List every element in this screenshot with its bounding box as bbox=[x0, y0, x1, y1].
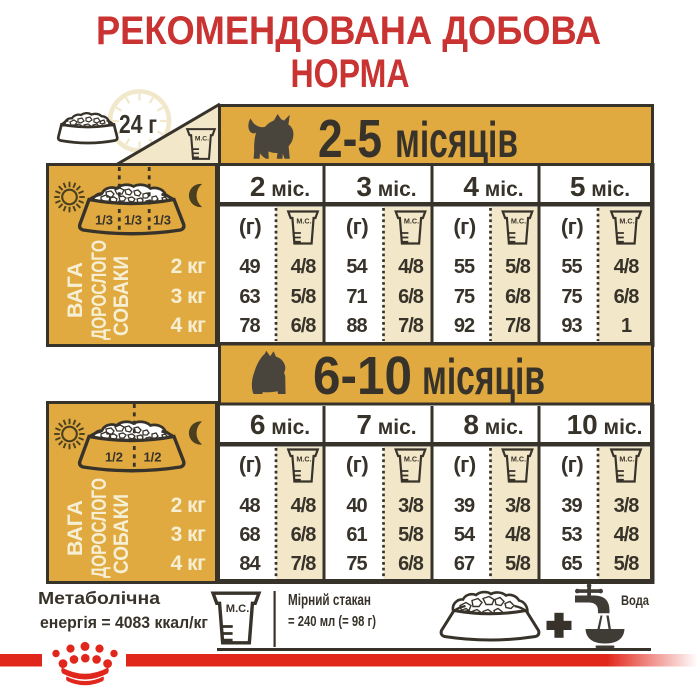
svg-text:3/8: 3/8 bbox=[505, 495, 531, 517]
svg-text:84: 84 bbox=[239, 553, 261, 575]
svg-text:40: 40 bbox=[346, 495, 367, 517]
svg-text:5/8: 5/8 bbox=[505, 553, 531, 575]
svg-text:6/8: 6/8 bbox=[398, 553, 424, 575]
svg-text:5/8: 5/8 bbox=[398, 524, 424, 546]
svg-text:75: 75 bbox=[346, 553, 367, 575]
svg-text:(г): (г) bbox=[453, 452, 475, 477]
svg-text:61: 61 bbox=[346, 524, 367, 546]
svg-text:4 кг: 4 кг bbox=[171, 552, 207, 575]
svg-text:75: 75 bbox=[561, 286, 582, 308]
svg-text:(г): (г) bbox=[561, 214, 583, 239]
svg-text:Вода: Вода bbox=[621, 592, 649, 608]
svg-text:78: 78 bbox=[239, 315, 260, 337]
svg-text:88: 88 bbox=[346, 315, 367, 337]
svg-text:24 г: 24 г bbox=[119, 109, 157, 139]
svg-text:67: 67 bbox=[454, 553, 475, 575]
svg-text:4/8: 4/8 bbox=[614, 524, 640, 546]
svg-text:6/8: 6/8 bbox=[505, 286, 531, 308]
svg-text:1: 1 bbox=[621, 315, 632, 337]
svg-text:Метаболічна: Метаболічна bbox=[38, 588, 160, 608]
svg-text:4/8: 4/8 bbox=[291, 256, 317, 278]
svg-text:ВАГА: ВАГА bbox=[64, 500, 87, 556]
svg-text:68: 68 bbox=[239, 524, 260, 546]
svg-text:СОБАКИ: СОБАКИ bbox=[110, 256, 133, 336]
svg-text:3 кг: 3 кг bbox=[171, 285, 207, 308]
svg-text:1/3: 1/3 bbox=[153, 213, 171, 228]
svg-text:3/8: 3/8 bbox=[398, 495, 424, 517]
svg-text:5/8: 5/8 bbox=[614, 553, 640, 575]
svg-text:(г): (г) bbox=[239, 452, 261, 477]
svg-text:4 кг: 4 кг bbox=[171, 314, 207, 337]
svg-text:6/8: 6/8 bbox=[614, 286, 640, 308]
svg-text:39: 39 bbox=[454, 495, 475, 517]
svg-text:ДОРОСЛОГО: ДОРОСЛОГО bbox=[88, 478, 111, 578]
svg-text:5/8: 5/8 bbox=[505, 256, 531, 278]
svg-text:54: 54 bbox=[454, 524, 476, 546]
svg-text:71: 71 bbox=[346, 286, 367, 308]
svg-text:СОБАКИ: СОБАКИ bbox=[110, 494, 133, 574]
svg-text:6/8: 6/8 bbox=[398, 286, 424, 308]
svg-text:39: 39 bbox=[561, 495, 582, 517]
svg-text:1/2: 1/2 bbox=[143, 450, 161, 465]
svg-text:6/8: 6/8 bbox=[291, 315, 317, 337]
svg-text:1/2: 1/2 bbox=[105, 450, 123, 465]
svg-text:Мірний стакан: Мірний стакан bbox=[288, 592, 371, 609]
svg-text:55: 55 bbox=[561, 256, 582, 278]
svg-text:2 кг: 2 кг bbox=[171, 494, 207, 517]
svg-text:(г): (г) bbox=[239, 214, 261, 239]
svg-text:4/8: 4/8 bbox=[505, 524, 531, 546]
svg-text:4/8: 4/8 bbox=[398, 256, 424, 278]
svg-text:ВАГА: ВАГА bbox=[64, 262, 87, 318]
svg-text:1/3: 1/3 bbox=[95, 213, 113, 228]
svg-text:місяців: місяців bbox=[422, 349, 545, 405]
svg-text:53: 53 bbox=[561, 524, 582, 546]
svg-text:63: 63 bbox=[239, 286, 260, 308]
svg-text:(г): (г) bbox=[561, 452, 583, 477]
svg-text:75: 75 bbox=[454, 286, 475, 308]
svg-text:3 кг: 3 кг bbox=[171, 523, 207, 546]
svg-text:48: 48 bbox=[239, 495, 260, 517]
svg-text:РЕКОМЕНДОВАНА ДОБОВА: РЕКОМЕНДОВАНА ДОБОВА bbox=[96, 9, 601, 53]
svg-text:енергія = 4083 ккал/кг: енергія = 4083 ккал/кг bbox=[40, 613, 208, 632]
svg-text:4/8: 4/8 bbox=[291, 495, 317, 517]
svg-text:49: 49 bbox=[239, 256, 260, 278]
svg-text:92: 92 bbox=[454, 315, 475, 337]
svg-text:93: 93 bbox=[561, 315, 582, 337]
svg-text:2 кг: 2 кг bbox=[171, 255, 207, 278]
svg-text:= 240 мл (= 98 г): = 240 мл (= 98 г) bbox=[288, 613, 376, 630]
svg-text:4/8: 4/8 bbox=[614, 256, 640, 278]
svg-text:7/8: 7/8 bbox=[505, 315, 531, 337]
svg-text:5/8: 5/8 bbox=[291, 286, 317, 308]
svg-text:1/3: 1/3 bbox=[124, 213, 142, 228]
svg-text:(г): (г) bbox=[453, 214, 475, 239]
svg-text:65: 65 bbox=[561, 553, 582, 575]
svg-text:54: 54 bbox=[346, 256, 368, 278]
svg-text:(г): (г) bbox=[346, 214, 368, 239]
svg-text:6-10: 6-10 bbox=[313, 346, 412, 406]
svg-text:(г): (г) bbox=[346, 452, 368, 477]
svg-text:ДОРОСЛОГО: ДОРОСЛОГО bbox=[88, 240, 111, 340]
svg-text:3/8: 3/8 bbox=[614, 495, 640, 517]
svg-text:7/8: 7/8 bbox=[398, 315, 424, 337]
svg-text:7/8: 7/8 bbox=[291, 553, 317, 575]
svg-text:НОРМА: НОРМА bbox=[291, 52, 410, 96]
svg-text:55: 55 bbox=[454, 256, 475, 278]
svg-text:місяців: місяців bbox=[395, 112, 518, 168]
svg-text:6/8: 6/8 bbox=[291, 524, 317, 546]
svg-text:2-5: 2-5 bbox=[318, 109, 382, 169]
